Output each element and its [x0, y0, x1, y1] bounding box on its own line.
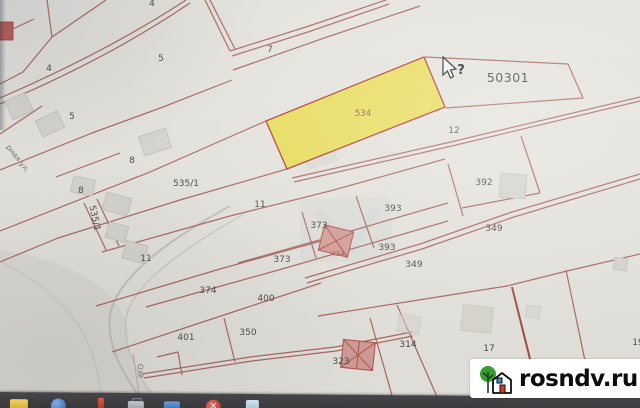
- parcel-label: 8: [78, 186, 84, 196]
- cadastral-map[interactable]: 4 5 7 4 5 8 535/1 8 535/1 11 12 392 393 …: [0, 0, 640, 408]
- cursor: ?: [443, 57, 465, 78]
- screen: 4 5 7 4 5 8 535/1 8 535/1 11 12 392 393 …: [0, 0, 640, 408]
- site-watermark: rosndv.ru: [470, 359, 640, 398]
- parcel-label: 5: [69, 112, 75, 122]
- parcel-label: 535/1: [173, 179, 199, 189]
- parcel-label: 392: [475, 178, 492, 188]
- parcel-label: 7: [267, 45, 273, 55]
- parcel-label: 350: [239, 328, 256, 338]
- parcel-label: 314: [399, 340, 416, 350]
- parcel-label: 373: [273, 255, 290, 265]
- cursor-arrow-icon: [443, 57, 456, 78]
- folder-icon[interactable]: [10, 397, 27, 408]
- parcel-label: 323: [332, 357, 349, 367]
- red-building-topleft: [0, 22, 13, 40]
- building-number-label: 434: [331, 250, 345, 258]
- parcel-label: 8: [129, 156, 135, 166]
- parcel-label: 373: [310, 221, 327, 231]
- parcel-label: 400: [257, 294, 274, 304]
- tree-house-logo-icon: [479, 364, 513, 394]
- parcel-label: 349: [405, 260, 422, 270]
- parcel-label: 374: [199, 286, 216, 296]
- close-badge-icon[interactable]: ×: [206, 399, 223, 408]
- browser-icon[interactable]: [51, 397, 68, 408]
- parcel-label: 11: [254, 200, 265, 210]
- street-name-label: Озё: [136, 364, 146, 379]
- parcel-label: 19: [632, 338, 640, 348]
- mail-icon[interactable]: [164, 398, 181, 408]
- quarter-number-label: 50301: [487, 70, 529, 85]
- parcel-label: 349: [485, 224, 502, 234]
- cursor-query-label: ?: [457, 63, 465, 78]
- parcel-label: 17: [483, 344, 494, 354]
- parcel-label: 393: [384, 204, 401, 214]
- highlighted-parcel-label: 534: [355, 109, 371, 119]
- parcel-label: 4: [149, 0, 155, 9]
- parcel-label: 5: [158, 54, 164, 64]
- briefcase-icon[interactable]: [128, 398, 145, 408]
- parcel-label: 4: [46, 64, 52, 74]
- parcel-label: 12: [448, 126, 459, 136]
- watermark-text: rosndv.ru: [519, 366, 638, 392]
- document-icon[interactable]: [244, 399, 261, 408]
- parcel-label: 393: [378, 243, 395, 253]
- parcel-label: 11: [140, 254, 151, 264]
- parcel-label: 401: [177, 333, 194, 343]
- bookmark-icon[interactable]: [94, 398, 111, 408]
